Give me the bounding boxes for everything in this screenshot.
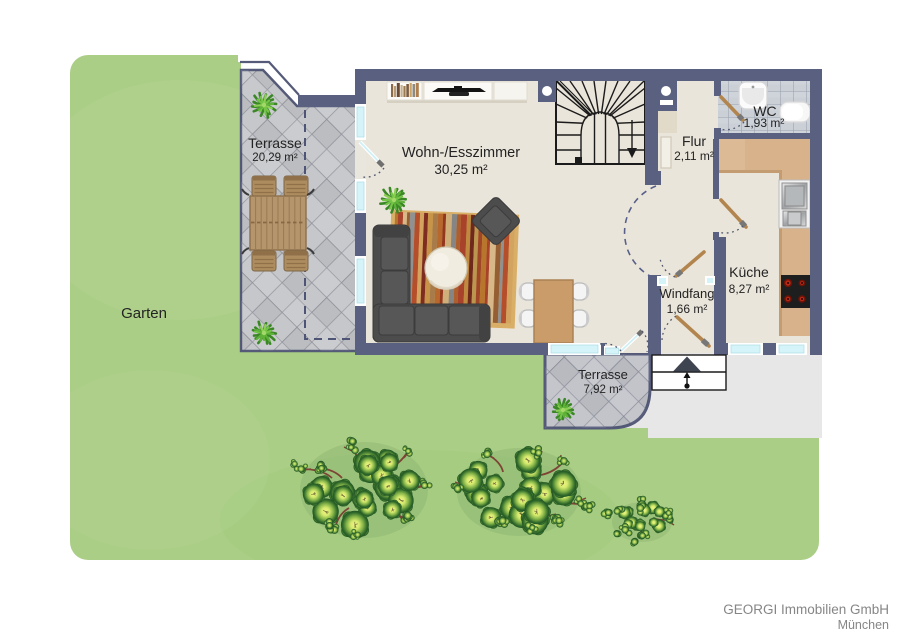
svg-text:30,25 m²: 30,25 m² [434, 162, 488, 177]
svg-text:20,29 m²: 20,29 m² [252, 152, 298, 164]
svg-text:Terrasse: Terrasse [578, 367, 628, 382]
svg-text:Küche: Küche [729, 264, 769, 280]
svg-text:Wohn-/Esszimmer: Wohn-/Esszimmer [402, 145, 520, 161]
svg-text:GEORGI Immobilien GmbH: GEORGI Immobilien GmbH [723, 602, 889, 617]
svg-text:8,27 m²: 8,27 m² [729, 282, 770, 296]
svg-text:Flur: Flur [682, 133, 706, 149]
svg-text:1,93 m²: 1,93 m² [744, 116, 785, 130]
svg-text:7,92 m²: 7,92 m² [584, 384, 623, 396]
svg-text:Windfang: Windfang [660, 286, 715, 301]
svg-text:2,11 m²: 2,11 m² [674, 149, 714, 163]
svg-text:Terrasse: Terrasse [248, 135, 302, 151]
svg-text:Garten: Garten [121, 305, 167, 322]
svg-text:München: München [838, 618, 889, 632]
svg-text:1,66 m²: 1,66 m² [667, 302, 708, 316]
